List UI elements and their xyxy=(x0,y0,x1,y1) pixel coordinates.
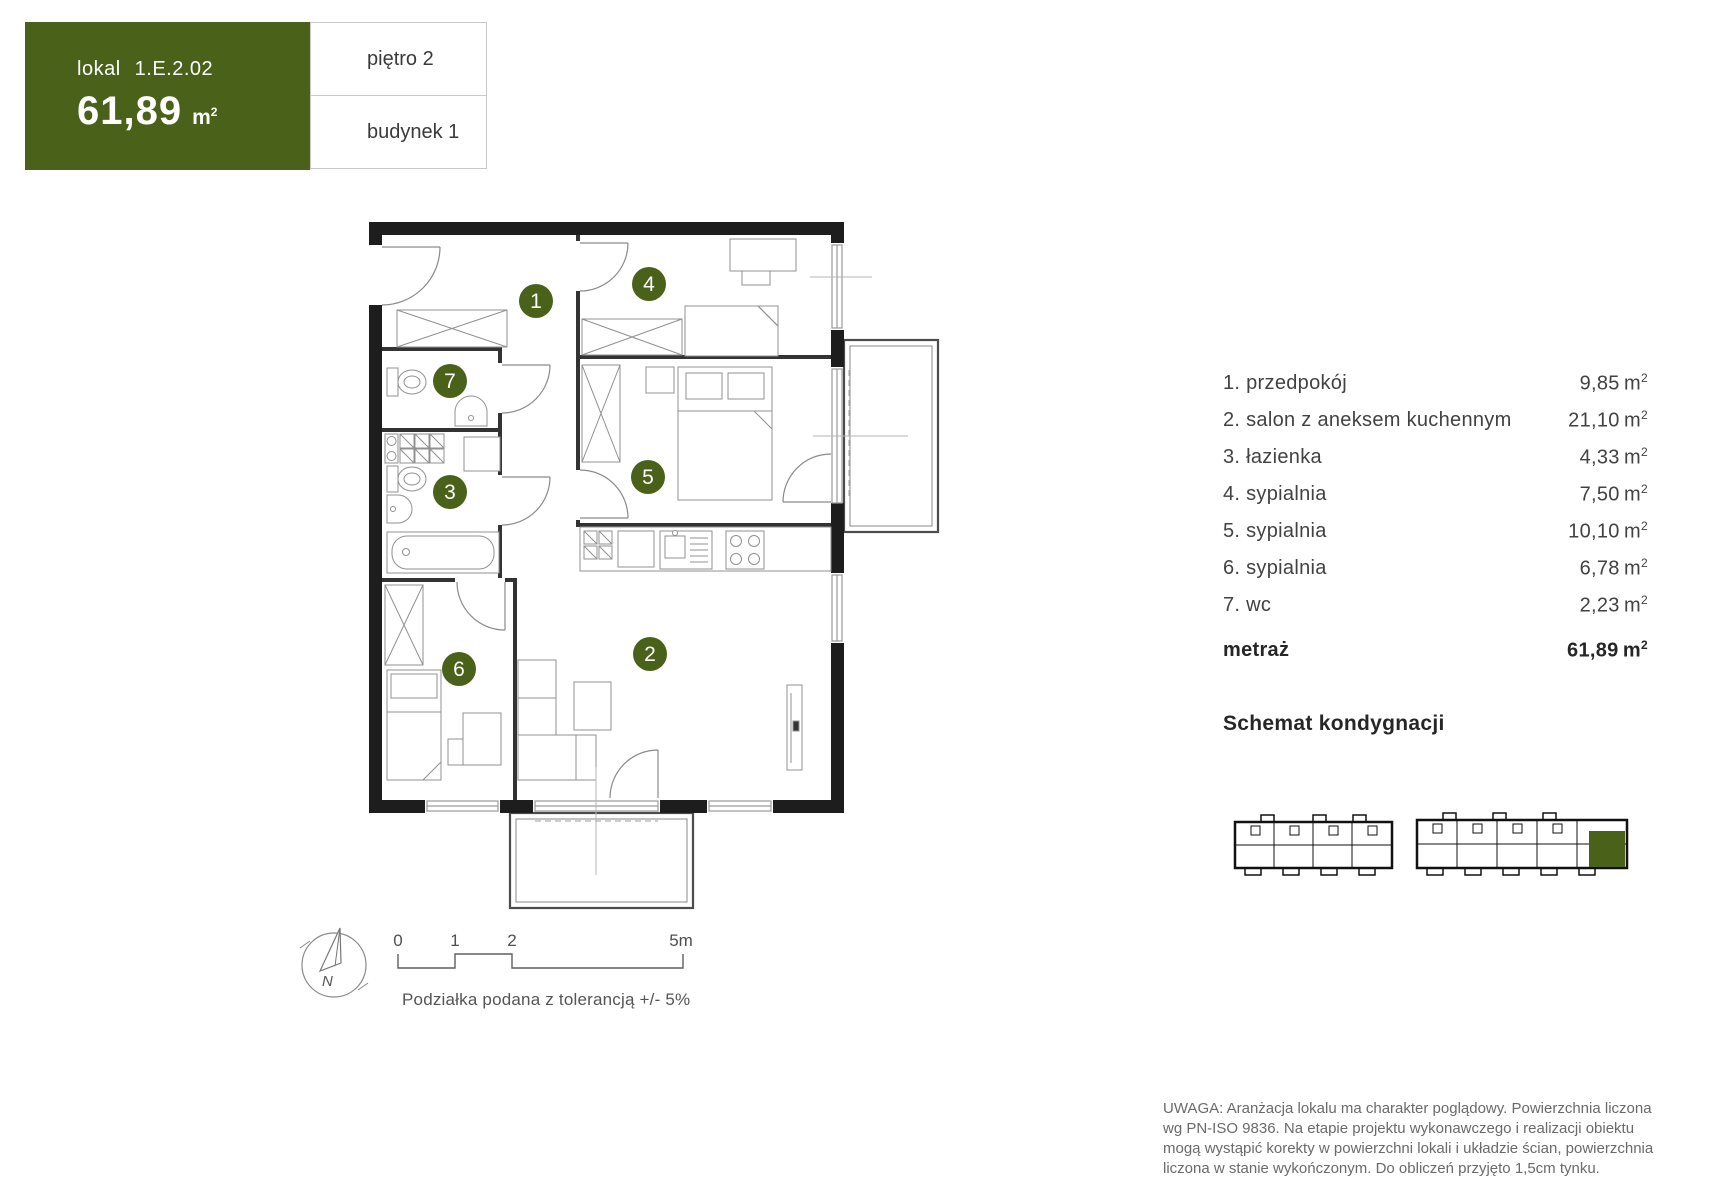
room-row-label: 3. łazienka xyxy=(1223,446,1322,469)
door-balcony-room5-icon xyxy=(783,454,831,502)
disclaimer-line: mogą wystąpić korekty w powierzchni loka… xyxy=(1163,1139,1703,1159)
toilet-bathroom-icon xyxy=(387,466,426,492)
cabinet-bathroom-icon xyxy=(464,437,500,471)
door-wc-icon xyxy=(502,365,550,413)
room-badge-5: 5 xyxy=(631,460,665,494)
sink-wc-icon xyxy=(455,396,487,426)
schemat-title: Schemat kondygnacji xyxy=(1223,712,1445,736)
room-badge-7-number: 7 xyxy=(444,370,456,393)
wardrobe-hall-icon xyxy=(397,310,507,347)
disclaimer: UWAGA: Aranżacja lokalu ma charakter pog… xyxy=(1163,1099,1703,1179)
floor-plan-drawing: 1 4 7 3 5 6 2 xyxy=(360,215,940,915)
total-area-row: metraż 61,89 m2 xyxy=(1223,632,1648,669)
door-room5-icon xyxy=(580,470,628,518)
nightstand-room5-icon xyxy=(646,367,674,393)
room-row-label: 4. sypialnia xyxy=(1223,483,1327,506)
disclaimer-line: liczona w stanie wykończonym. Do oblicze… xyxy=(1163,1159,1703,1179)
floor-cell: piętro 2 xyxy=(310,22,487,96)
window-salon-bottom-icon xyxy=(709,801,771,811)
toilet-wc-icon xyxy=(387,368,426,396)
scale-tick-label-1: 1 xyxy=(450,931,459,950)
room-row-6: 6. sypialnia 6,78 m2 xyxy=(1223,550,1648,587)
room-badge-2: 2 xyxy=(633,637,667,671)
room-row-1: 1. przedpokój 9,85 m2 xyxy=(1223,365,1648,402)
schemat-diagram xyxy=(1225,806,1635,886)
room-badge-1: 1 xyxy=(519,284,553,318)
floor-plan-sheet: lokal1.E.2.02 61,89m2 piętro 2 budynek 1 xyxy=(0,0,1719,1200)
stove-icon xyxy=(726,531,764,569)
disclaimer-line: wg PN-ISO 9836. Na etapie projektu wykon… xyxy=(1163,1119,1703,1139)
wardrobe-room6-icon xyxy=(385,585,423,665)
unit-highlight xyxy=(1589,831,1625,867)
scale-tick-label-0: 0 xyxy=(393,931,402,950)
room-row-2: 2. salon z aneksem kuchennym 21,10 m2 xyxy=(1223,402,1648,439)
lokal-area-value: 61,89 xyxy=(77,89,182,133)
room-badge-4: 4 xyxy=(632,267,666,301)
window-room4-icon xyxy=(832,245,842,328)
building-outline-right xyxy=(1417,813,1627,875)
entrance-door-icon xyxy=(382,247,440,305)
room-row-area: 4,33 m2 xyxy=(1580,445,1648,470)
room-badge-3: 3 xyxy=(433,475,467,509)
tv-unit-icon xyxy=(787,685,802,770)
room-row-area: 7,50 m2 xyxy=(1580,482,1648,507)
room-badge-4-number: 4 xyxy=(643,273,655,296)
bathtub-icon xyxy=(387,532,499,573)
lokal-area: 61,89m2 xyxy=(77,89,310,134)
building-cell: budynek 1 xyxy=(310,95,487,169)
room-badge-6-number: 6 xyxy=(453,658,465,681)
door-balcony-salon-icon xyxy=(610,750,658,798)
bed-room5-icon xyxy=(678,367,772,500)
room-row-4: 4. sypialnia 7,50 m2 xyxy=(1223,476,1648,513)
room-row-label: 7. wc xyxy=(1223,594,1271,617)
lokal-title: lokal1.E.2.02 xyxy=(77,58,310,81)
total-area-label: metraż xyxy=(1223,639,1289,662)
scale-bar-line xyxy=(398,954,683,968)
coffee-table-icon xyxy=(574,682,611,730)
bed-room6-icon xyxy=(387,670,441,780)
room-row-area: 6,78 m2 xyxy=(1580,556,1648,581)
bed-room4-icon xyxy=(685,306,778,356)
room-badge-2-number: 2 xyxy=(644,643,656,666)
room-row-area: 21,10 m2 xyxy=(1568,408,1648,433)
room-badge-1-number: 1 xyxy=(530,290,542,313)
scale-bar: 0 1 2 5m xyxy=(280,918,720,978)
room-row-7: 7. wc 2,23 m2 xyxy=(1223,587,1648,624)
window-salon-right-icon xyxy=(832,575,842,641)
room-row-area: 10,10 m2 xyxy=(1568,519,1648,544)
scale-caption: Podziałka podana z tolerancją +/- 5% xyxy=(402,990,690,1010)
desk-room4-icon xyxy=(730,239,796,285)
lokal-area-unit: m2 xyxy=(192,106,217,129)
balcony-bottom xyxy=(510,813,693,908)
door-room4-icon xyxy=(580,243,628,291)
room-row-label: 5. sypialnia xyxy=(1223,520,1327,543)
room-badge-7: 7 xyxy=(433,364,467,398)
room-row-label: 1. przedpokój xyxy=(1223,372,1347,395)
room-badge-3-number: 3 xyxy=(444,481,456,504)
desk-room6-icon xyxy=(448,713,501,765)
kitchen-counter-icon xyxy=(580,527,831,571)
room-row-5: 5. sypialnia 10,10 m2 xyxy=(1223,513,1648,550)
door-bathroom-icon xyxy=(502,477,550,525)
door-room6-icon xyxy=(457,582,505,630)
room-row-label: 2. salon z aneksem kuchennym xyxy=(1223,409,1512,432)
total-area-value: 61,89 m2 xyxy=(1567,638,1648,663)
room-list: 1. przedpokój 9,85 m2 2. salon z aneksem… xyxy=(1223,365,1648,624)
room-badge-6: 6 xyxy=(442,652,476,686)
lokal-panel: lokal1.E.2.02 61,89m2 xyxy=(25,22,310,170)
lokal-label: lokal xyxy=(77,58,121,80)
wardrobe-room5-icon xyxy=(582,365,620,462)
room-row-3: 3. łazienka 4,33 m2 xyxy=(1223,439,1648,476)
window-room6-icon xyxy=(427,801,498,811)
sink-bathroom-icon xyxy=(387,495,412,523)
room-row-area: 9,85 m2 xyxy=(1580,371,1648,396)
scale-tick-label-5m: 5m xyxy=(669,931,693,950)
room-badge-5-number: 5 xyxy=(642,466,654,489)
lokal-number: 1.E.2.02 xyxy=(135,58,214,80)
room-row-label: 6. sypialnia xyxy=(1223,557,1327,580)
scale-tick-label-2: 2 xyxy=(507,931,516,950)
furniture xyxy=(385,239,831,780)
wardrobe-room4-icon xyxy=(582,319,682,355)
room-row-area: 2,23 m2 xyxy=(1580,593,1648,618)
disclaimer-line: UWAGA: Aranżacja lokalu ma charakter pog… xyxy=(1163,1099,1703,1119)
header-cells: piętro 2 budynek 1 xyxy=(310,22,487,170)
washer-stack-icon xyxy=(385,434,444,463)
building-outline-left xyxy=(1235,815,1392,875)
